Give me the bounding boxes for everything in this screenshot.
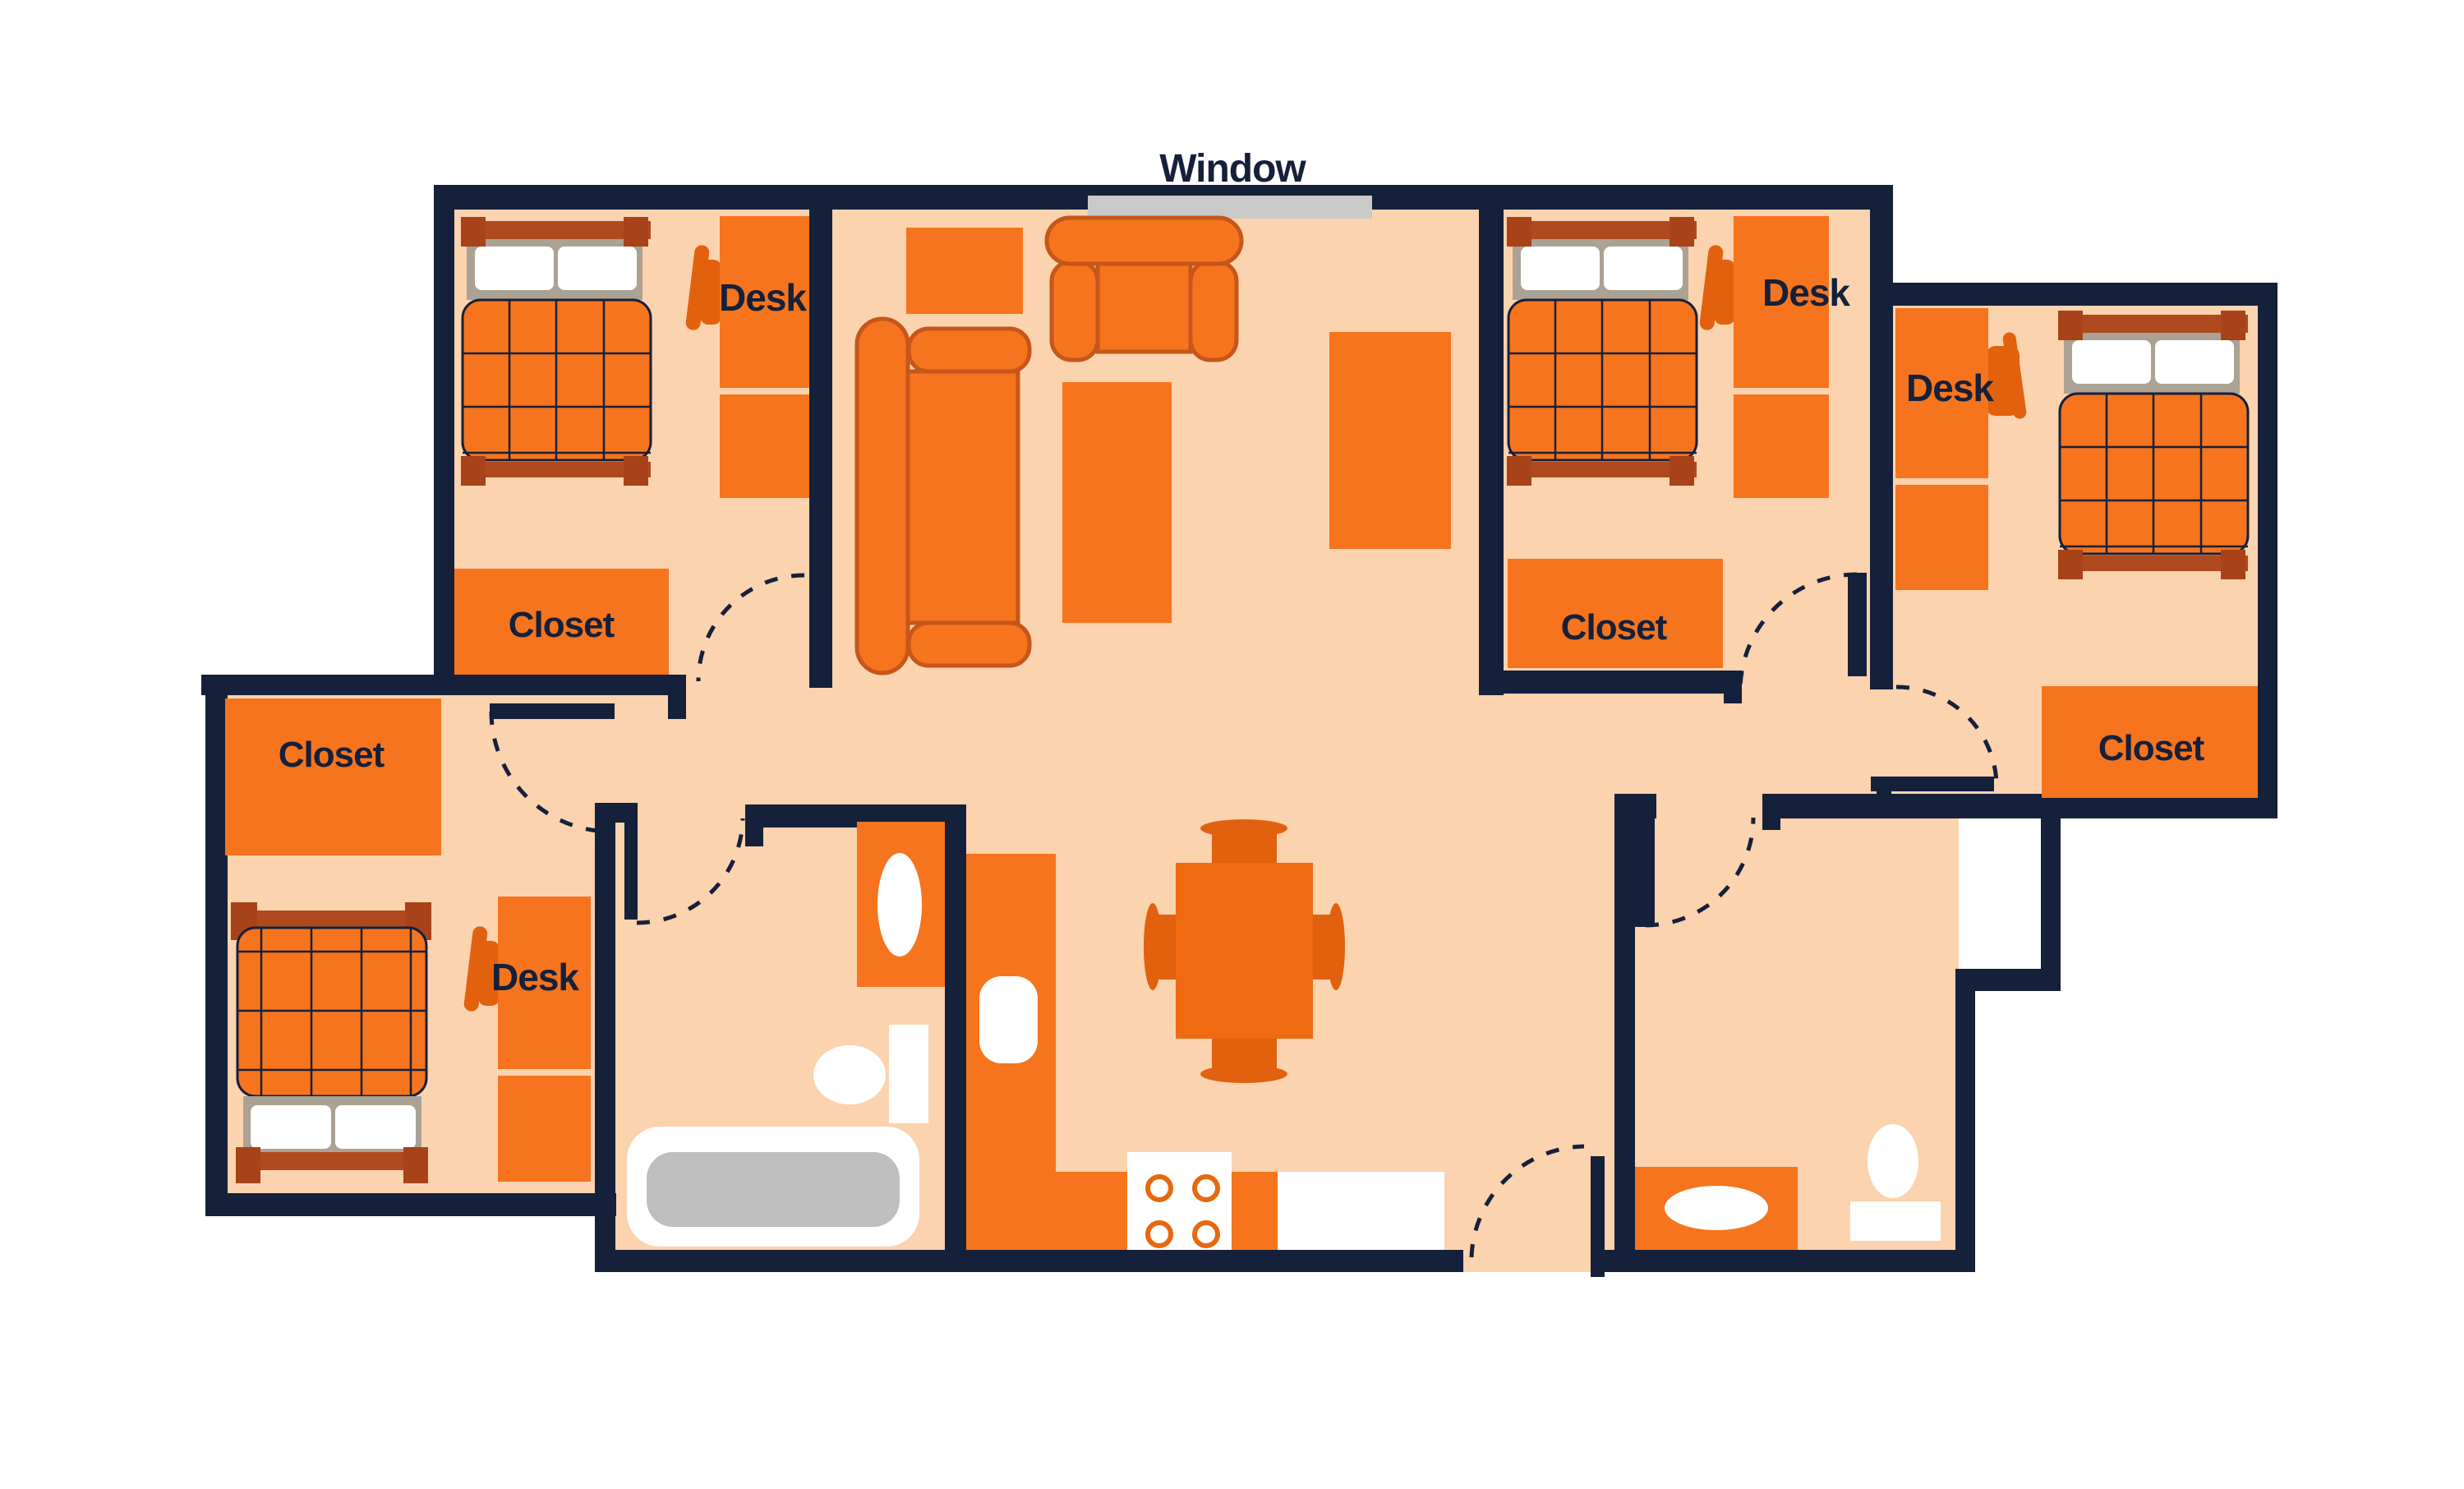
svg-text:Closet: Closet — [509, 605, 615, 645]
svg-text:Desk: Desk — [491, 956, 579, 998]
svg-text:Desk: Desk — [1762, 271, 1850, 314]
svg-text:Desk: Desk — [1906, 366, 1994, 409]
svg-text:Desk: Desk — [719, 276, 807, 319]
svg-text:Window: Window — [1159, 147, 1306, 191]
svg-text:Closet: Closet — [2098, 728, 2205, 768]
svg-text:Closet: Closet — [1561, 607, 1668, 648]
svg-text:Closet: Closet — [279, 735, 385, 775]
